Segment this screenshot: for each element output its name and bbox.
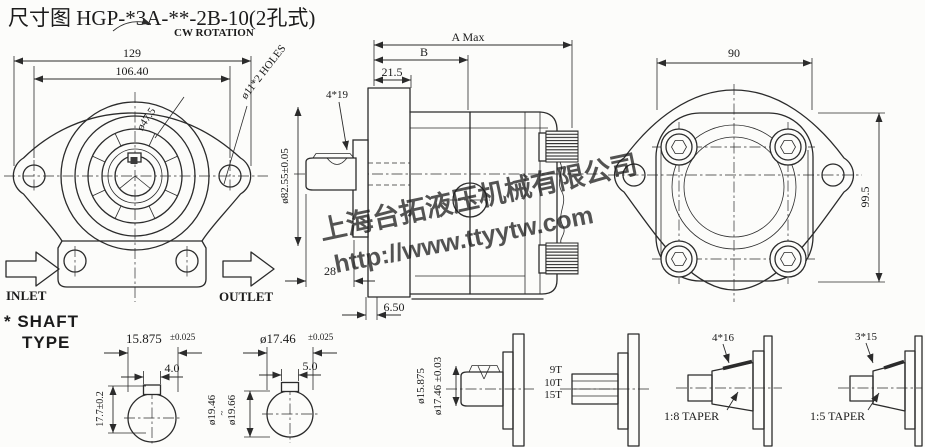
page-title: 尺寸图 HGP-*3A-**-2B-10(2孔式): [8, 6, 315, 30]
rear-bolt-bottom: [546, 243, 578, 274]
pump-dimension-drawing: 尺寸图 HGP-*3A-**-2B-10(2孔式): [0, 0, 925, 447]
shaft1-tol: ±0.025: [170, 332, 196, 342]
shaft2-tol: ±0.025: [308, 332, 334, 342]
dim-99-5: 99.5: [858, 187, 872, 208]
shaft-type-section: * SHAFT TYPE 15.875 ±0.025 4.0 17.7±0.2 …: [4, 312, 922, 446]
spline-10t: 10T: [544, 377, 562, 389]
taper-shaft-1-5: 3*15 1:5 TAPER: [810, 331, 922, 446]
dim-90: 90: [728, 46, 740, 60]
rear-bolt-top: [546, 131, 578, 162]
dim-b: B: [420, 45, 428, 59]
cw-rotation-label: CW ROTATION: [174, 27, 254, 39]
taper2-key: 3*15: [855, 331, 878, 343]
inlet-arrow: [6, 252, 59, 286]
rear-view: 90 99.5: [608, 46, 885, 302]
dia-max: ø19.66: [226, 394, 238, 425]
shaft1-key-width: 4.0: [165, 361, 180, 375]
dim-a-max: A Max: [452, 30, 485, 44]
taper1-key: 4*16: [712, 332, 735, 344]
inlet-label: INLET: [6, 288, 47, 303]
front-view-dimensions: 129 106.40 CW ROTATION ø47.5 ø11*2 HOLES…: [6, 22, 298, 304]
outlet-arrow: [223, 252, 274, 286]
taper1-label: 1:8 TAPER: [664, 409, 719, 423]
side-dia-2: ø17.46 ±0.03: [432, 356, 444, 415]
dim-129: 129: [123, 46, 141, 60]
shaft-heading-2: TYPE: [22, 333, 70, 352]
shaft2-end-view: ø17.46 ±0.025 5.0: [243, 331, 337, 443]
keyed-shaft-side-view: ø15.875 ø17.46 ±0.03: [415, 334, 534, 446]
holes-label: ø11*2 HOLES: [239, 43, 289, 102]
dim-106: 106.40: [116, 64, 149, 78]
shaft2-dia: ø17.46: [260, 331, 296, 346]
spline-shaft-view: 9T 10T 15T: [544, 334, 650, 446]
drive-shaft: [306, 158, 356, 190]
spline-9t: 9T: [550, 364, 563, 376]
keyway-slot: [131, 157, 138, 164]
pilot-dia-label: ø82.55±0.05: [279, 148, 291, 204]
shaft2-key-width: 5.0: [303, 359, 318, 373]
shaft-heading-1: * SHAFT: [4, 312, 79, 331]
dia-min: ø19.46: [206, 394, 218, 425]
key-4x19: 4*19: [326, 89, 349, 101]
shaft1-height: 17.7±0.2: [95, 391, 106, 427]
spline-15t: 15T: [544, 389, 562, 401]
taper2-label: 1:5 TAPER: [810, 409, 865, 423]
taper-shaft-1-8: 4*16 1:8 TAPER: [664, 332, 782, 446]
dim-21-5: 21.5: [382, 65, 403, 79]
shaft1-end-view: 15.875 ±0.025 4.0 17.7±0.2: [95, 331, 202, 446]
dim-6-50: 6.50: [384, 300, 405, 314]
outlet-label: OUTLET: [219, 289, 274, 304]
shaft1-dia: 15.875: [126, 331, 162, 346]
rear-bolts: [661, 129, 806, 277]
side-dia-1: ø15.875: [415, 368, 427, 404]
